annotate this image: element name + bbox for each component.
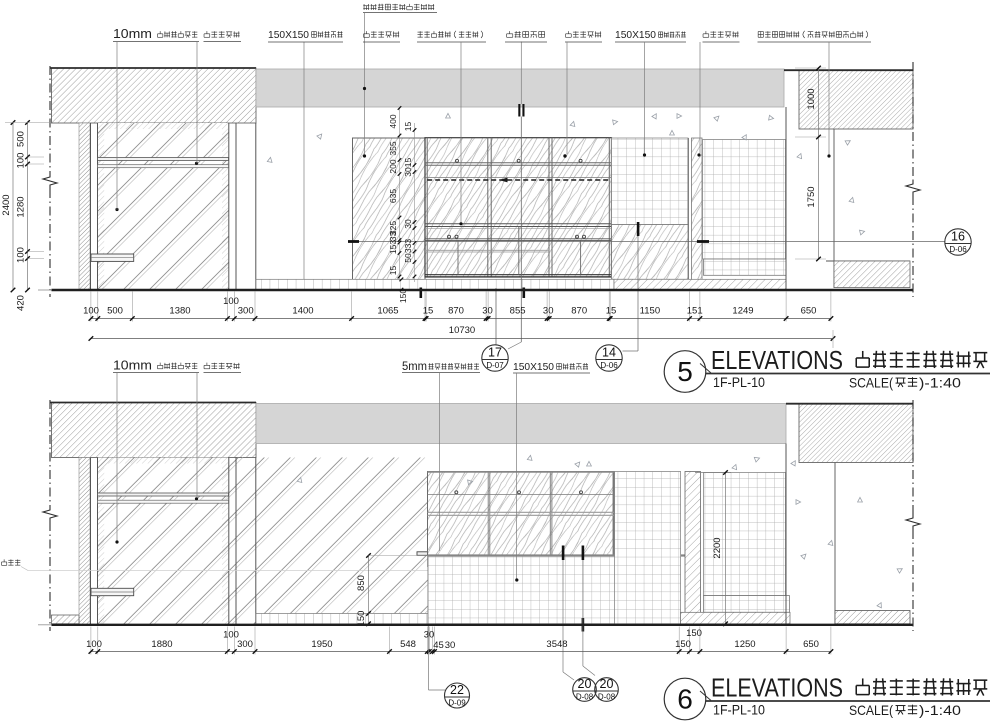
svg-text:100: 100: [16, 247, 27, 263]
svg-text:650: 650: [803, 639, 819, 650]
svg-text:500: 500: [16, 131, 27, 147]
svg-text:15: 15: [403, 122, 413, 132]
svg-text:15: 15: [423, 306, 434, 317]
svg-text:10mm: 10mm: [113, 26, 152, 41]
svg-text:22: 22: [450, 683, 464, 697]
svg-text:1249: 1249: [732, 306, 753, 317]
svg-text:355: 355: [388, 141, 398, 155]
svg-text:5: 5: [677, 356, 693, 387]
svg-text:D-06: D-06: [600, 361, 618, 370]
svg-text:45: 45: [433, 640, 444, 651]
svg-text:420: 420: [16, 295, 27, 311]
svg-text:635: 635: [388, 189, 398, 203]
svg-text:150X150: 150X150: [513, 361, 554, 373]
svg-text:D-08: D-08: [598, 693, 616, 702]
svg-text:200: 200: [388, 159, 398, 173]
svg-text:100: 100: [86, 639, 102, 650]
svg-text:150X150: 150X150: [268, 29, 309, 41]
svg-text:870: 870: [571, 306, 587, 317]
svg-text:30: 30: [403, 167, 413, 177]
svg-text:1750: 1750: [806, 186, 817, 207]
svg-text:855: 855: [510, 306, 526, 317]
svg-text:20: 20: [600, 677, 614, 691]
svg-text:10730: 10730: [449, 325, 475, 336]
svg-text:650: 650: [801, 306, 817, 317]
svg-text:150X150: 150X150: [615, 29, 656, 41]
svg-text:1950: 1950: [311, 639, 332, 650]
svg-text:50: 50: [403, 253, 413, 263]
svg-text:100: 100: [16, 153, 27, 169]
svg-text:30: 30: [424, 630, 435, 641]
svg-text:)-1:40: )-1:40: [919, 702, 961, 718]
svg-text:548: 548: [400, 639, 416, 650]
svg-text:850: 850: [356, 575, 367, 591]
svg-text:1400: 1400: [292, 306, 313, 317]
svg-text:1880: 1880: [151, 639, 172, 650]
svg-text:5mm: 5mm: [402, 359, 427, 373]
svg-text:2200: 2200: [712, 537, 723, 558]
svg-text:D-06: D-06: [949, 245, 967, 254]
svg-text:151: 151: [687, 306, 703, 317]
svg-text:30: 30: [543, 306, 554, 317]
svg-text:30: 30: [403, 219, 413, 229]
svg-text:15: 15: [388, 266, 398, 276]
svg-text:100: 100: [83, 306, 99, 317]
svg-text:500: 500: [107, 306, 123, 317]
svg-text:30: 30: [445, 640, 456, 651]
svg-text:1F-PL-10: 1F-PL-10: [713, 374, 765, 390]
svg-text:100: 100: [223, 296, 239, 307]
svg-text:D-07: D-07: [486, 361, 504, 370]
svg-text:ELEVATIONS: ELEVATIONS: [711, 673, 843, 703]
svg-text:15: 15: [403, 158, 413, 168]
svg-text:1000: 1000: [806, 88, 817, 109]
svg-text:16: 16: [951, 230, 965, 244]
svg-text:D-09: D-09: [448, 699, 466, 708]
svg-text:1065: 1065: [377, 306, 398, 317]
svg-text:14: 14: [602, 346, 616, 360]
svg-text:D-08: D-08: [576, 693, 594, 702]
svg-text:400: 400: [388, 114, 398, 128]
svg-text:153: 153: [388, 240, 398, 254]
svg-text:300: 300: [238, 306, 254, 317]
svg-text:1F-PL-10: 1F-PL-10: [713, 702, 765, 718]
svg-text:1150: 1150: [640, 306, 660, 317]
svg-text:30: 30: [482, 306, 493, 317]
svg-text:33: 33: [388, 232, 398, 242]
svg-text:6: 6: [677, 684, 693, 715]
svg-text:17: 17: [488, 346, 502, 360]
svg-text:1280: 1280: [16, 196, 27, 217]
svg-text:3548: 3548: [546, 639, 567, 650]
svg-text:20: 20: [578, 677, 592, 691]
svg-text:ELEVATIONS: ELEVATIONS: [711, 345, 843, 375]
svg-text:2400: 2400: [1, 194, 12, 215]
svg-text:)-1:40: )-1:40: [919, 375, 961, 391]
svg-text:SCALE(: SCALE(: [849, 375, 893, 391]
svg-text:333: 333: [403, 239, 413, 253]
svg-text:10mm: 10mm: [113, 358, 152, 373]
svg-text:SCALE(: SCALE(: [849, 702, 893, 718]
svg-text:1380: 1380: [169, 306, 190, 317]
svg-text:150: 150: [675, 639, 691, 650]
svg-text:1250: 1250: [734, 639, 755, 650]
svg-text:870: 870: [448, 306, 464, 317]
svg-text:15: 15: [606, 306, 617, 317]
svg-text:300: 300: [237, 639, 253, 650]
svg-text:150: 150: [686, 628, 702, 639]
